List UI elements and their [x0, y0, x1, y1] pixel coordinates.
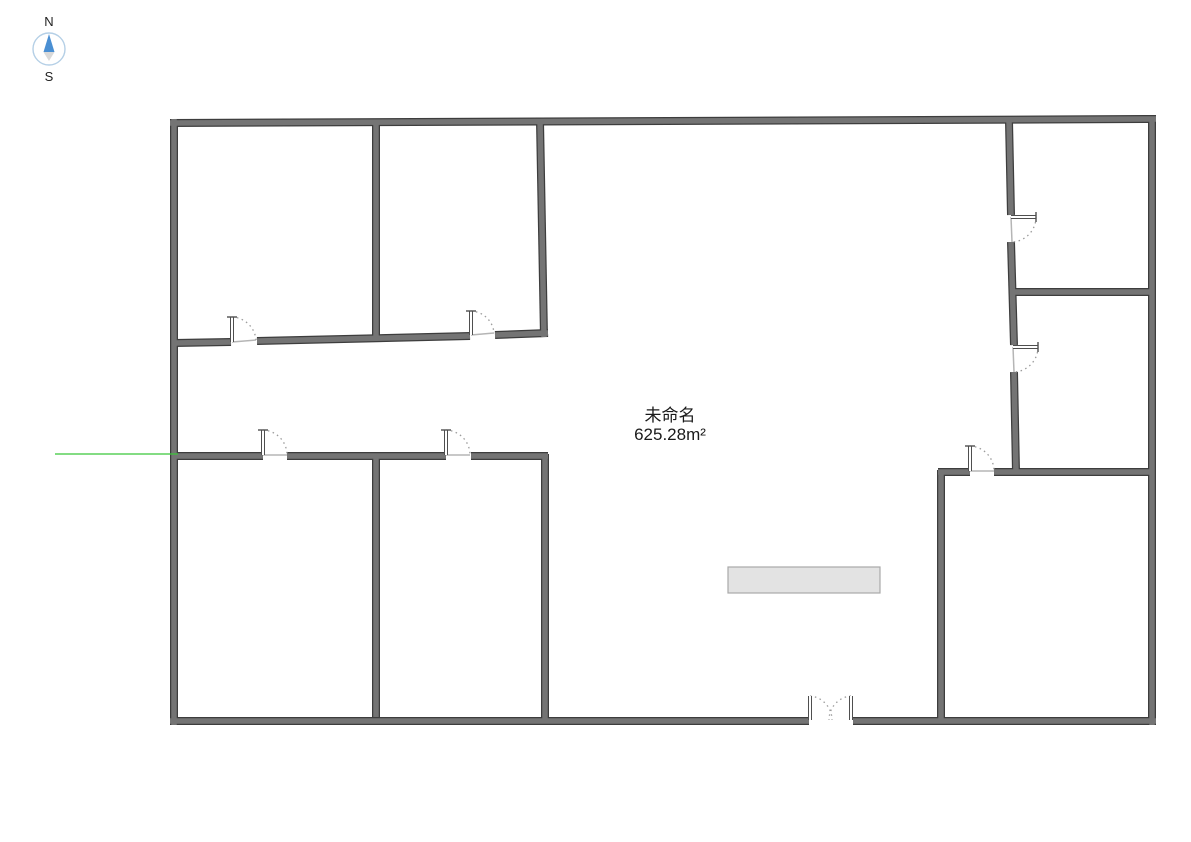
room-label[interactable]: 未命名 625.28m² [634, 406, 706, 444]
door-single[interactable] [1013, 342, 1038, 372]
compass-north-label: N [44, 14, 53, 29]
compass-south-label: S [45, 69, 54, 84]
door-swing-arc [829, 696, 851, 720]
door-double[interactable] [810, 696, 851, 720]
door-single[interactable] [466, 311, 494, 335]
room-name[interactable]: 未命名 [645, 406, 696, 425]
door-swing-arc [810, 696, 832, 720]
door-single[interactable] [965, 446, 994, 471]
compass: N S [33, 14, 65, 84]
door-swing-arc [446, 430, 470, 455]
door-swing-arc [471, 311, 494, 333]
door-swing-arc [970, 446, 994, 471]
door-swing-arc [1012, 217, 1036, 242]
wall-segment[interactable] [174, 342, 231, 343]
door-single[interactable] [441, 430, 470, 455]
doors-layer [227, 212, 1038, 720]
door-single[interactable] [258, 430, 287, 455]
floorplan-svg[interactable]: N S 未命名 625.28m² [0, 0, 1191, 842]
door-swing-arc [232, 317, 256, 340]
door-swing-arc [263, 430, 287, 455]
wall-segment[interactable] [1009, 121, 1011, 215]
door-single[interactable] [227, 317, 256, 342]
door-sill [471, 333, 494, 335]
door-sill [232, 340, 256, 342]
door-single[interactable] [1011, 212, 1036, 242]
furniture-table[interactable] [728, 567, 880, 593]
room-area[interactable]: 625.28m² [634, 425, 706, 444]
floorplan-editor-canvas: N S 未命名 625.28m² [0, 0, 1191, 842]
door-swing-arc [1014, 347, 1038, 372]
wall-segment[interactable] [1014, 372, 1016, 472]
door-sill [1011, 217, 1012, 242]
furniture-layer [728, 567, 880, 593]
wall-segment[interactable] [495, 333, 548, 335]
door-sill [1013, 347, 1014, 372]
